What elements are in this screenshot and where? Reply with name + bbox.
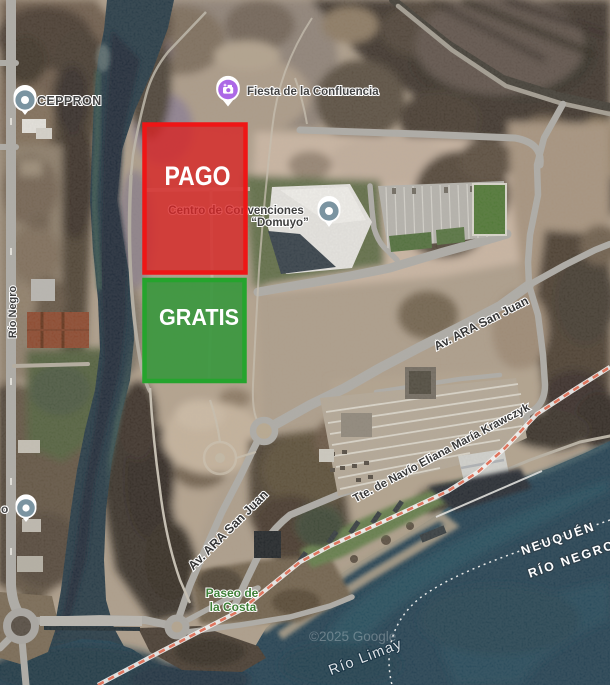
svg-text:PAGO: PAGO xyxy=(165,161,231,191)
svg-text:CEPPRON: CEPPRON xyxy=(37,94,102,108)
svg-text:“Domuyo”: “Domuyo” xyxy=(251,217,309,229)
svg-text:la Costa: la Costa xyxy=(210,600,257,614)
svg-text:Fiesta de la Confluencia: Fiesta de la Confluencia xyxy=(247,86,379,98)
svg-text:©2025 Google: ©2025 Google xyxy=(309,629,396,644)
svg-text:Paseo de: Paseo de xyxy=(206,586,259,600)
svg-text:GRATIS: GRATIS xyxy=(159,304,239,330)
svg-text:Río Negro: Río Negro xyxy=(7,285,19,338)
svg-text:o: o xyxy=(1,502,8,516)
